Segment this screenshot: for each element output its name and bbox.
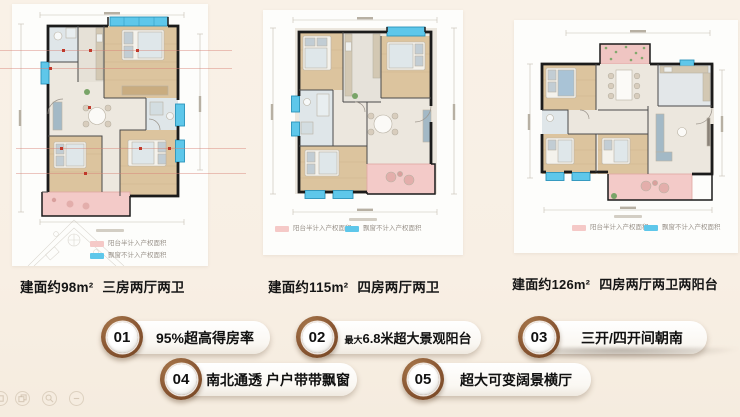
floor-plan-98-drawing [12, 4, 208, 266]
floor-plan-card-98: 阳台半计入产权面积 飘窗不计入产权面积 [12, 4, 208, 266]
floor-plan-card-115: 阳台半计入产权面积 飘窗不计入产权面积 [263, 10, 463, 255]
feature-number: 04 [166, 364, 197, 395]
unit-title-115: 建面约115m²四房两厅两卫 [268, 276, 440, 296]
legend-balcony-label: 阳台半计入产权面积 [108, 241, 167, 248]
legend-balcony-swatch [572, 225, 586, 231]
feature-pill-02: 最大6.8米超大景观阳台 [315, 321, 481, 354]
feature-pill-05: 超大可变阔景横厅 [421, 363, 591, 396]
floor-plan-card-126: 阳台半计入产权面积 飘窗不计入产权面积 [514, 20, 738, 253]
legend-bay-swatch [644, 225, 658, 231]
feature-badge-02: 02 [296, 316, 338, 358]
feature-text: 6.8米超大景观阳台 [362, 331, 471, 346]
minus-icon[interactable] [69, 391, 84, 406]
feature-text: 超大可变阔景横厅 [460, 372, 572, 388]
feature-badge-03: 03 [518, 316, 560, 358]
unit-area: 建面约115m² [268, 280, 348, 295]
unit-layout: 四房两厅两卫两阳台 [599, 277, 718, 292]
feature-pill-03: 三开/四开间朝南 [537, 321, 707, 354]
unit-title-126: 建面约126m²四房两厅两卫两阳台 [512, 274, 718, 293]
viewer-control-icon[interactable] [0, 391, 8, 406]
legend-bay: 飘窗不计入产权面积 [90, 253, 167, 260]
feature-number: 05 [408, 364, 439, 395]
legend-bay-swatch [345, 226, 359, 232]
feature-badge-04: 04 [160, 358, 202, 400]
legend-bay: 飘窗不计入产权面积 [644, 225, 721, 232]
copy-icon[interactable] [15, 391, 30, 406]
legend-bay-label: 飘窗不计入产权面积 [363, 226, 422, 233]
feature-number: 03 [524, 322, 555, 353]
feature-prefix: 最大 [344, 335, 362, 345]
legend-balcony: 阳台半计入产权面积 [572, 225, 649, 232]
legend-bay-swatch [90, 253, 104, 259]
slide: { "page": { "background": "#f8efe4", "ac… [0, 0, 740, 417]
unit-layout: 三房两厅两卫 [102, 280, 184, 295]
feature-pill-04: 南北通透 户户带带飘窗 [179, 363, 357, 396]
unit-layout: 四房两厅两卫 [357, 280, 439, 295]
legend-bay: 飘窗不计入产权面积 [345, 226, 422, 233]
feature-text: 三开/四开间朝南 [581, 330, 683, 346]
feature-number: 02 [302, 322, 333, 353]
feature-badge-01: 01 [101, 316, 143, 358]
legend-balcony-swatch [90, 241, 104, 247]
feature-badge-05: 05 [402, 358, 444, 400]
unit-area: 建面约126m² [512, 277, 590, 292]
legend-balcony: 阳台半计入产权面积 [90, 241, 167, 248]
feature-text: 95%超高得房率 [156, 330, 254, 346]
legend-balcony-swatch [275, 226, 289, 232]
plan-note-marks [349, 218, 377, 221]
legend-bay-label: 飘窗不计入产权面积 [108, 253, 167, 260]
legend-balcony: 阳台半计入产权面积 [275, 226, 352, 233]
feature-number: 01 [107, 322, 138, 353]
plan-note-marks [96, 229, 124, 232]
legend-bay-label: 飘窗不计入产权面积 [662, 225, 721, 232]
floor-plan-126-drawing [514, 20, 738, 253]
plan-note-marks [614, 215, 642, 218]
legend-balcony-label: 阳台半计入产权面积 [590, 225, 649, 232]
feature-text: 南北通透 户户带带飘窗 [206, 372, 350, 388]
search-icon[interactable] [42, 391, 57, 406]
unit-area: 建面约98m² [20, 280, 93, 295]
legend-balcony-label: 阳台半计入产权面积 [293, 226, 352, 233]
unit-title-98: 建面约98m²三房两厅两卫 [20, 276, 185, 296]
